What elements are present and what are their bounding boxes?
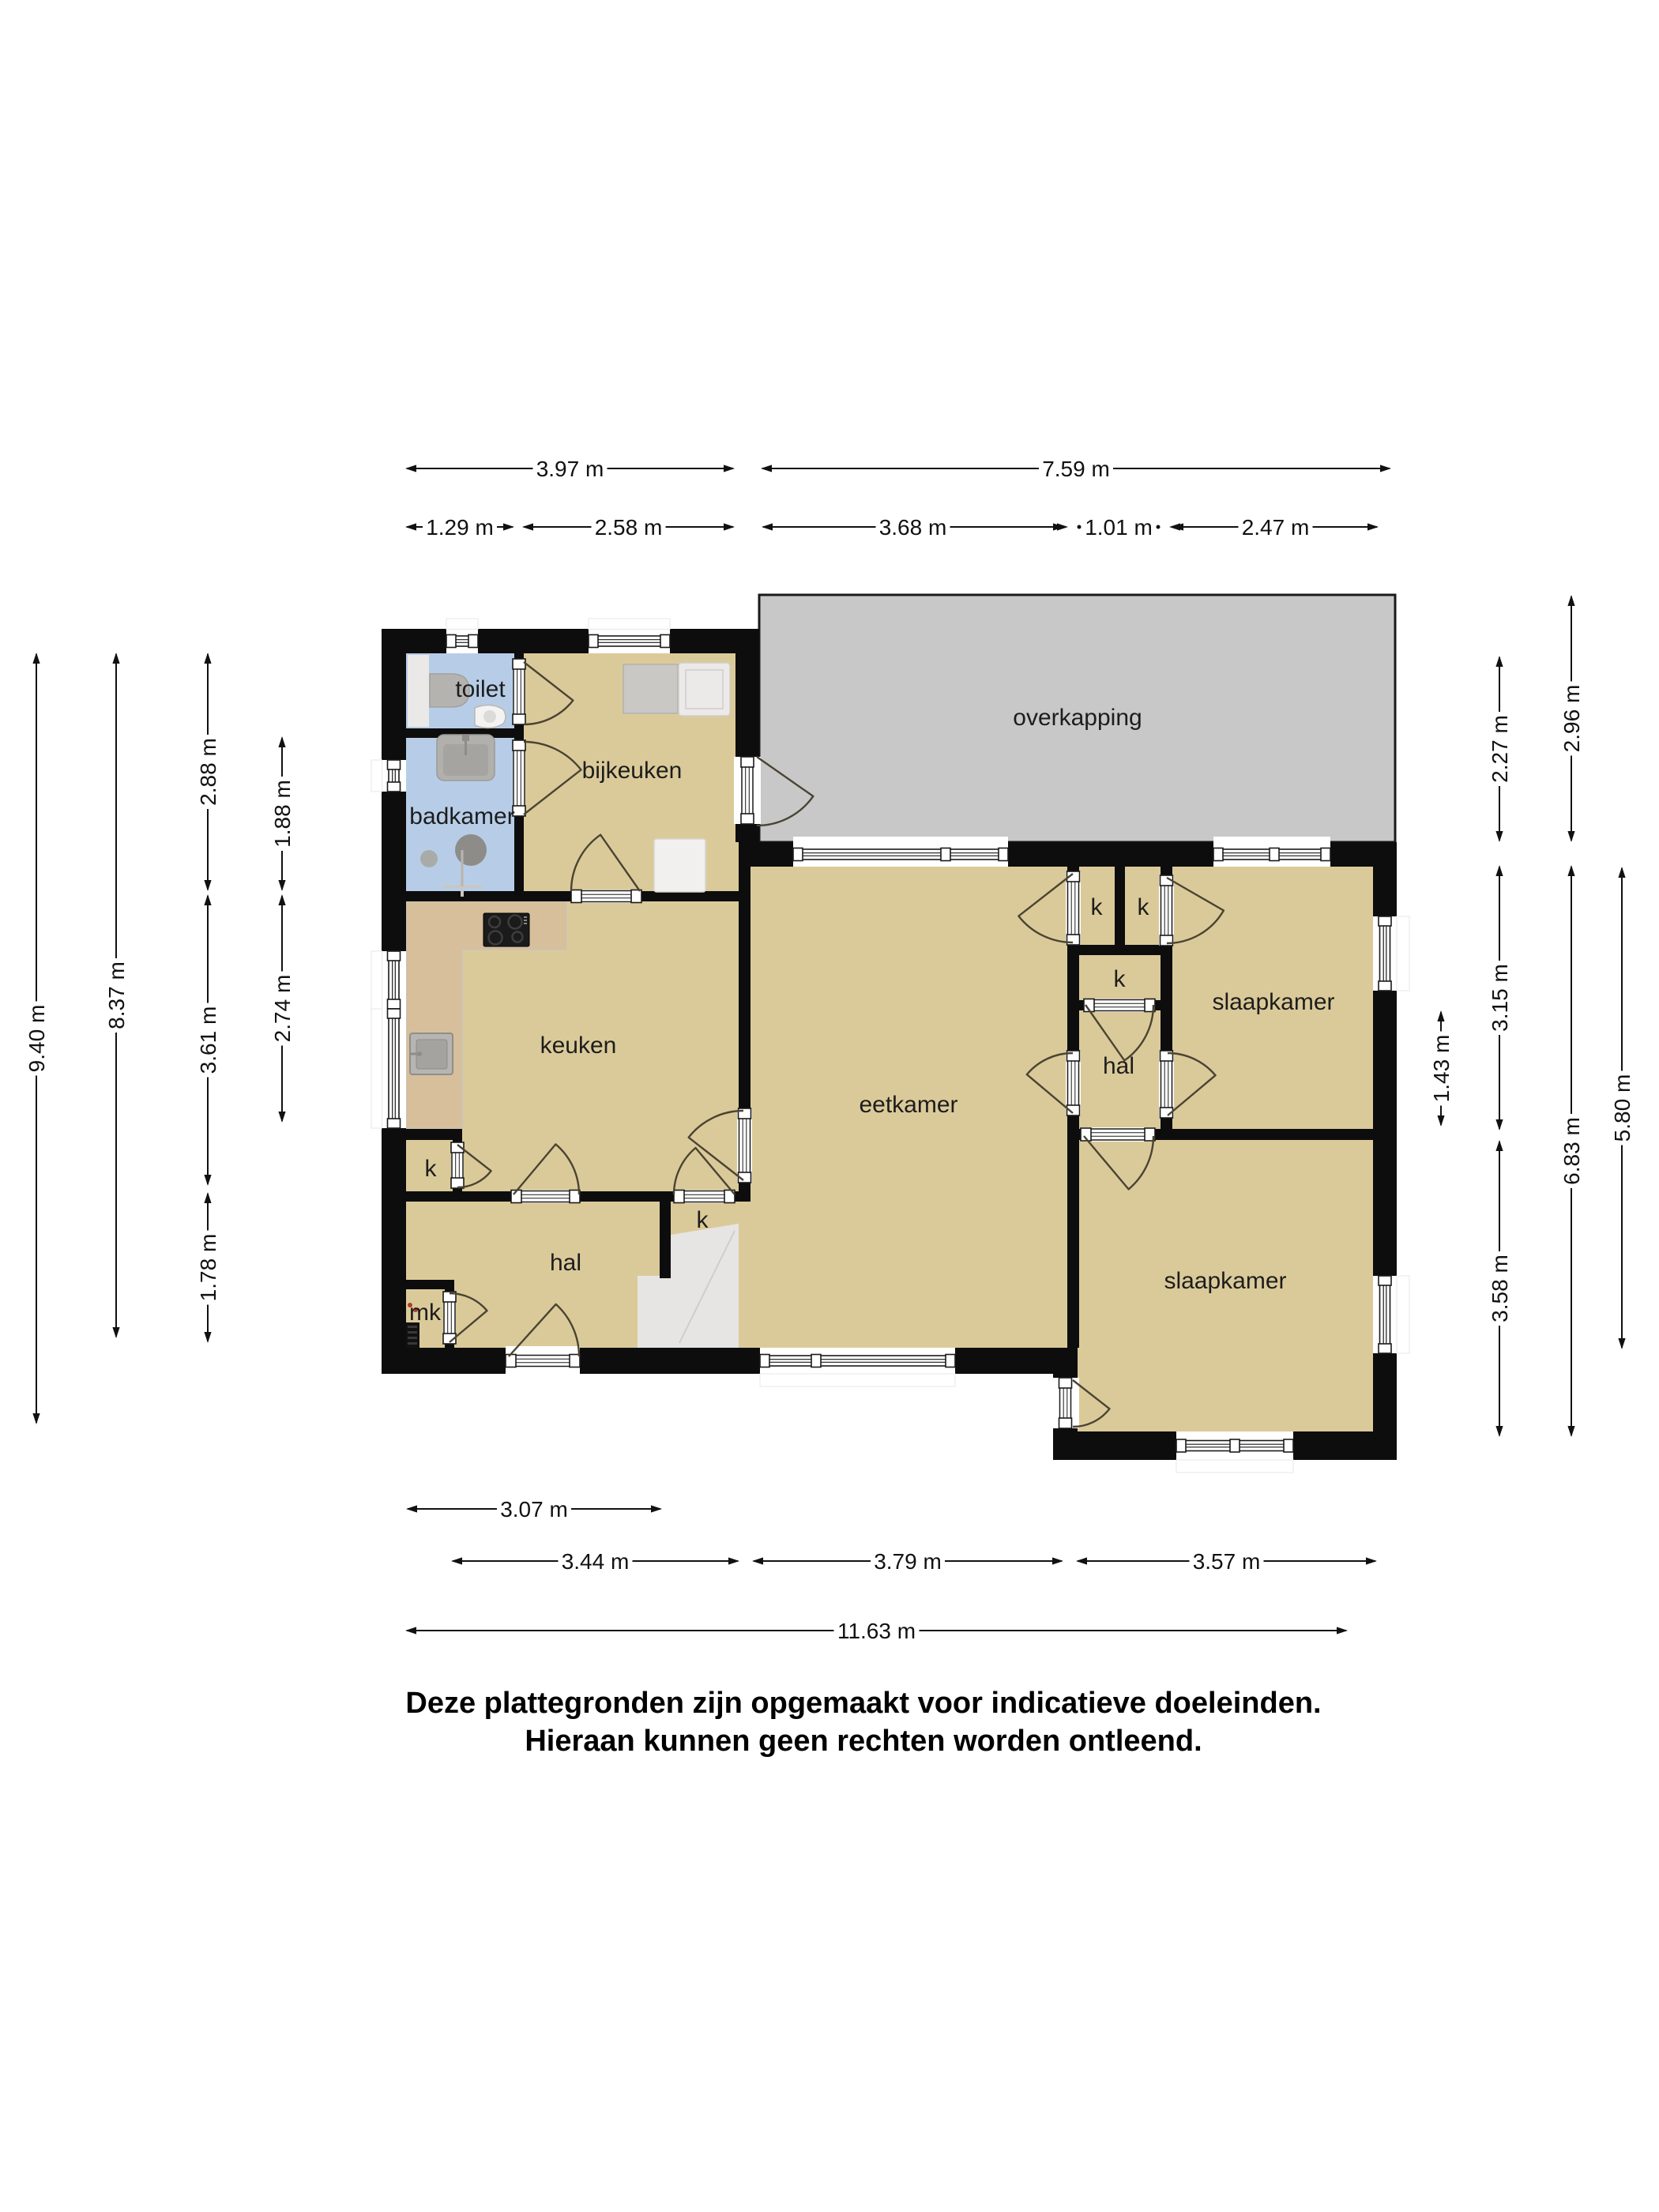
svg-text:11.63 m: 11.63 m (837, 1619, 916, 1643)
svg-text:3.44 m: 3.44 m (562, 1549, 630, 1574)
svg-text:hal: hal (1103, 1053, 1134, 1079)
svg-text:2.96 m: 2.96 m (1559, 685, 1584, 753)
svg-text:badkamer: badkamer (409, 803, 514, 829)
svg-text:1.78 m: 1.78 m (196, 1234, 220, 1302)
svg-text:bijkeuken: bijkeuken (582, 758, 683, 784)
svg-text:3.61 m: 3.61 m (196, 1006, 220, 1074)
svg-text:overkapping: overkapping (1013, 705, 1142, 731)
svg-text:slaapkamer: slaapkamer (1164, 1268, 1286, 1294)
svg-text:2.27 m: 2.27 m (1488, 715, 1512, 783)
svg-text:2.88 m: 2.88 m (196, 738, 220, 806)
svg-text:3.07 m: 3.07 m (500, 1497, 568, 1522)
svg-text:7.59 m: 7.59 m (1042, 457, 1110, 481)
svg-text:toilet: toilet (455, 676, 506, 702)
svg-text:2.47 m: 2.47 m (1242, 515, 1310, 540)
svg-text:2.58 m: 2.58 m (595, 515, 663, 540)
svg-text:Hieraan kunnen geen rechten wo: Hieraan kunnen geen rechten worden ontle… (525, 1725, 1202, 1758)
svg-text:mk: mk (409, 1300, 442, 1326)
svg-text:1.01 m: 1.01 m (1085, 515, 1153, 540)
svg-text:1.29 m: 1.29 m (426, 515, 494, 540)
svg-text:2.74 m: 2.74 m (270, 975, 295, 1043)
svg-text:3.57 m: 3.57 m (1193, 1549, 1261, 1574)
svg-text:1.43 m: 1.43 m (1429, 1035, 1454, 1103)
svg-text:k: k (1138, 894, 1150, 920)
svg-text:k: k (425, 1156, 438, 1182)
svg-text:k: k (697, 1207, 709, 1233)
svg-text:3.97 m: 3.97 m (536, 457, 604, 481)
svg-text:keuken: keuken (540, 1033, 617, 1059)
svg-text:3.15 m: 3.15 m (1488, 964, 1512, 1032)
svg-text:k: k (1091, 894, 1104, 920)
svg-text:8.37 m: 8.37 m (104, 961, 129, 1029)
svg-text:k: k (1114, 966, 1127, 992)
svg-text:slaapkamer: slaapkamer (1212, 989, 1334, 1015)
svg-text:9.40 m: 9.40 m (24, 1005, 49, 1073)
svg-text:Deze plattegronden zijn opgema: Deze plattegronden zijn opgemaakt voor i… (405, 1687, 1321, 1720)
svg-text:1.88 m: 1.88 m (270, 780, 295, 848)
svg-text:3.58 m: 3.58 m (1488, 1255, 1512, 1322)
svg-text:hal: hal (550, 1250, 581, 1276)
svg-text:eetkamer: eetkamer (859, 1092, 957, 1118)
svg-text:3.68 m: 3.68 m (879, 515, 947, 540)
svg-text:3.79 m: 3.79 m (874, 1549, 942, 1574)
svg-text:6.83 m: 6.83 m (1559, 1117, 1584, 1185)
svg-text:5.80 m: 5.80 m (1610, 1074, 1635, 1142)
